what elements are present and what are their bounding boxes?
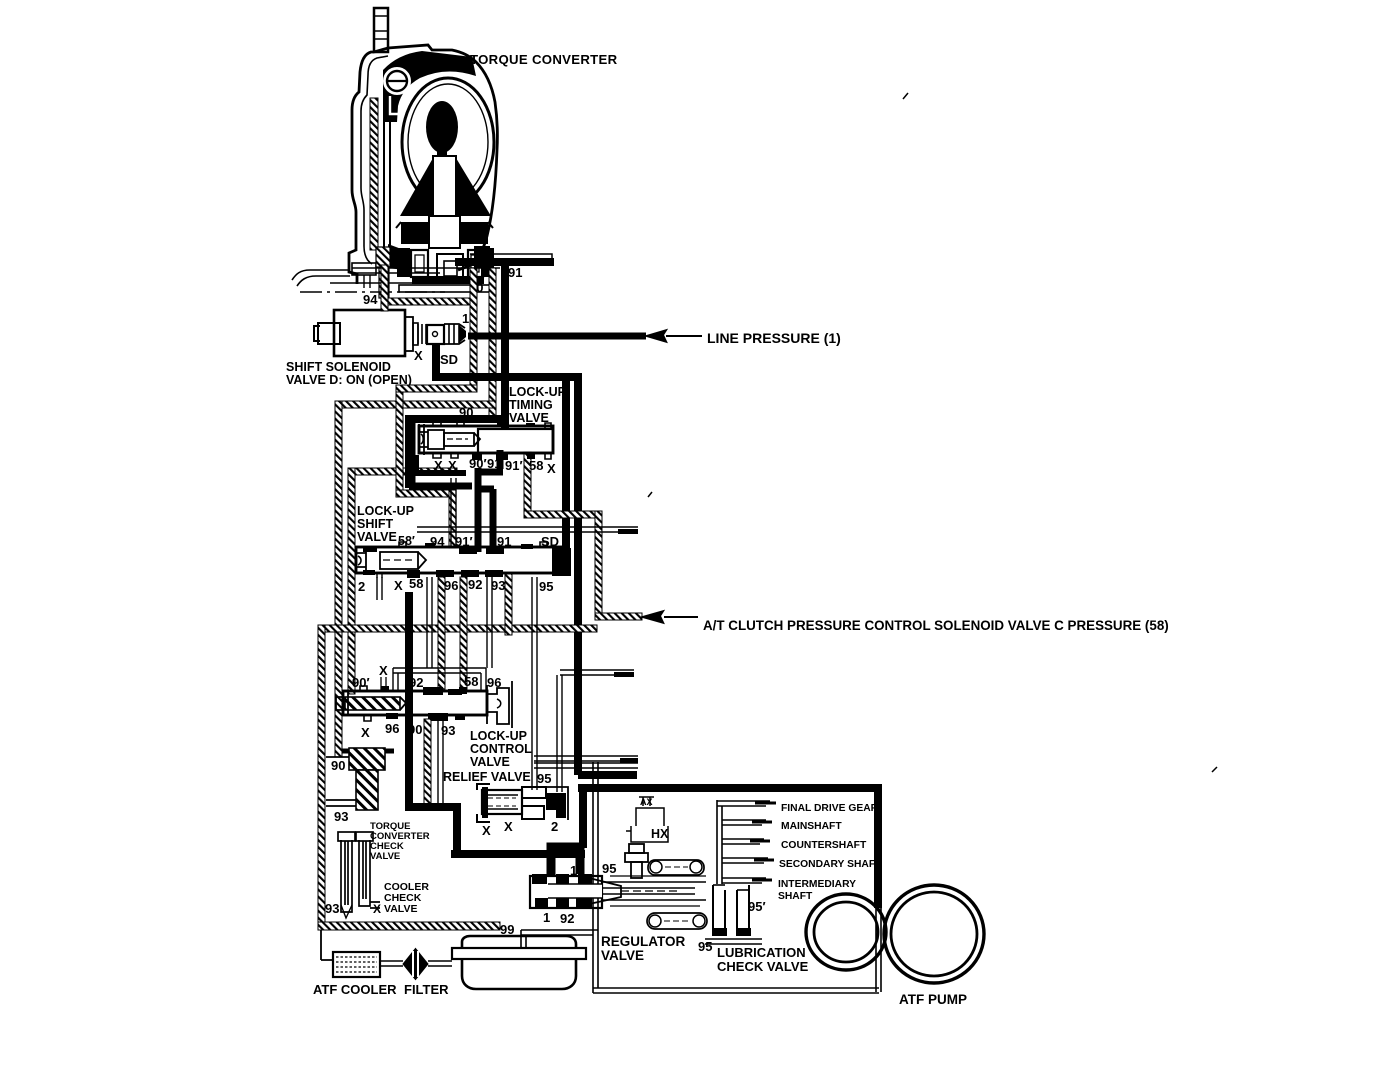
svg-text:58′: 58′: [398, 534, 415, 548]
svg-text:90′: 90′: [469, 456, 487, 471]
svg-text:FINAL DRIVE GEAR: FINAL DRIVE GEAR: [781, 803, 879, 814]
svg-text:LOCK-UP: LOCK-UP: [509, 385, 566, 399]
svg-text:58: 58: [464, 674, 478, 689]
svg-text:X: X: [482, 823, 491, 838]
svg-text:95′: 95′: [748, 899, 766, 914]
svg-text:COUNTERSHAFT: COUNTERSHAFT: [781, 840, 867, 851]
svg-text:TORQUE CONVERTER: TORQUE CONVERTER: [470, 52, 618, 67]
svg-text:96: 96: [444, 578, 458, 593]
svg-text:X: X: [504, 819, 513, 834]
svg-text:94: 94: [363, 292, 378, 307]
svg-text:VALVE: VALVE: [509, 411, 549, 425]
svg-text:SHIFT: SHIFT: [357, 517, 393, 531]
svg-text:LUBRICATION: LUBRICATION: [717, 945, 806, 960]
svg-text:X: X: [414, 348, 423, 363]
svg-text:1: 1: [462, 311, 469, 326]
svg-text:58: 58: [529, 458, 543, 473]
svg-text:X: X: [379, 663, 388, 678]
svg-text:RELIEF VALVE: RELIEF VALVE: [443, 770, 531, 784]
svg-text:X: X: [547, 461, 556, 476]
svg-text:X: X: [448, 458, 457, 473]
svg-text:58: 58: [409, 576, 423, 591]
svg-text:VALVE: VALVE: [601, 948, 644, 963]
svg-text:90: 90: [408, 722, 422, 737]
svg-text:X: X: [394, 578, 403, 593]
svg-text:ATF PUMP: ATF PUMP: [899, 992, 967, 1007]
svg-text:SECONDARY SHAFT: SECONDARY SHAFT: [779, 859, 882, 870]
svg-text:LINE PRESSURE (1): LINE PRESSURE (1): [707, 330, 841, 346]
svg-text:92: 92: [409, 675, 423, 690]
svg-text:INTERMEDIARY: INTERMEDIARY: [778, 879, 856, 890]
svg-text:TIMING: TIMING: [509, 398, 553, 412]
svg-text:91: 91: [497, 534, 511, 549]
svg-text:X: X: [434, 458, 443, 473]
svg-text:FILTER: FILTER: [404, 982, 449, 997]
svg-text:LOCK-UP: LOCK-UP: [357, 504, 414, 518]
svg-text:91′: 91′: [505, 458, 523, 473]
svg-text:REGULATOR: REGULATOR: [601, 934, 686, 949]
svg-text:VALVE: VALVE: [470, 755, 510, 769]
svg-text:95: 95: [537, 771, 551, 786]
svg-text:92: 92: [560, 911, 574, 926]
svg-text:SD: SD: [541, 534, 559, 549]
svg-text:95: 95: [698, 939, 712, 954]
svg-text:X: X: [361, 725, 370, 740]
svg-text:2: 2: [358, 579, 365, 594]
svg-text:90: 90: [459, 405, 473, 420]
svg-text:MAINSHAFT: MAINSHAFT: [781, 821, 842, 832]
svg-text:VALVE: VALVE: [384, 903, 417, 915]
svg-text:VALVE: VALVE: [370, 851, 400, 862]
svg-text:ATF COOLER: ATF COOLER: [313, 982, 397, 997]
svg-text:92: 92: [468, 577, 482, 592]
svg-text:CHECK VALVE: CHECK VALVE: [717, 959, 809, 974]
svg-text:94: 94: [430, 534, 445, 549]
svg-text:LOCK-UP: LOCK-UP: [470, 729, 527, 743]
svg-text:93: 93: [491, 578, 505, 593]
svg-text:HX: HX: [651, 827, 669, 841]
svg-text:91′: 91′: [455, 534, 473, 549]
svg-text:90′: 90′: [352, 675, 370, 690]
svg-text:SHAFT: SHAFT: [778, 891, 813, 902]
svg-text:93: 93: [334, 809, 348, 824]
svg-text:SD: SD: [440, 352, 458, 367]
svg-text:SHIFT SOLENOID: SHIFT SOLENOID: [286, 360, 391, 374]
svg-text:VALVE: VALVE: [357, 530, 397, 544]
svg-text:VALVE D: ON (OPEN): VALVE D: ON (OPEN): [286, 373, 412, 387]
svg-text:95: 95: [539, 579, 553, 594]
svg-text:A/T CLUTCH PRESSURE CONTROL SO: A/T CLUTCH PRESSURE CONTROL SOLENOID VAL…: [703, 618, 1169, 633]
svg-text:90: 90: [331, 758, 345, 773]
svg-text:96: 96: [385, 721, 399, 736]
svg-text:X: X: [373, 902, 381, 916]
svg-text:CONTROL: CONTROL: [470, 742, 532, 756]
svg-text:96: 96: [487, 675, 501, 690]
svg-text:91: 91: [487, 456, 501, 471]
svg-text:93: 93: [325, 901, 339, 916]
svg-text:2: 2: [551, 819, 558, 834]
svg-text:1: 1: [543, 910, 550, 925]
svg-text:91: 91: [508, 265, 522, 280]
svg-text:95: 95: [602, 861, 616, 876]
